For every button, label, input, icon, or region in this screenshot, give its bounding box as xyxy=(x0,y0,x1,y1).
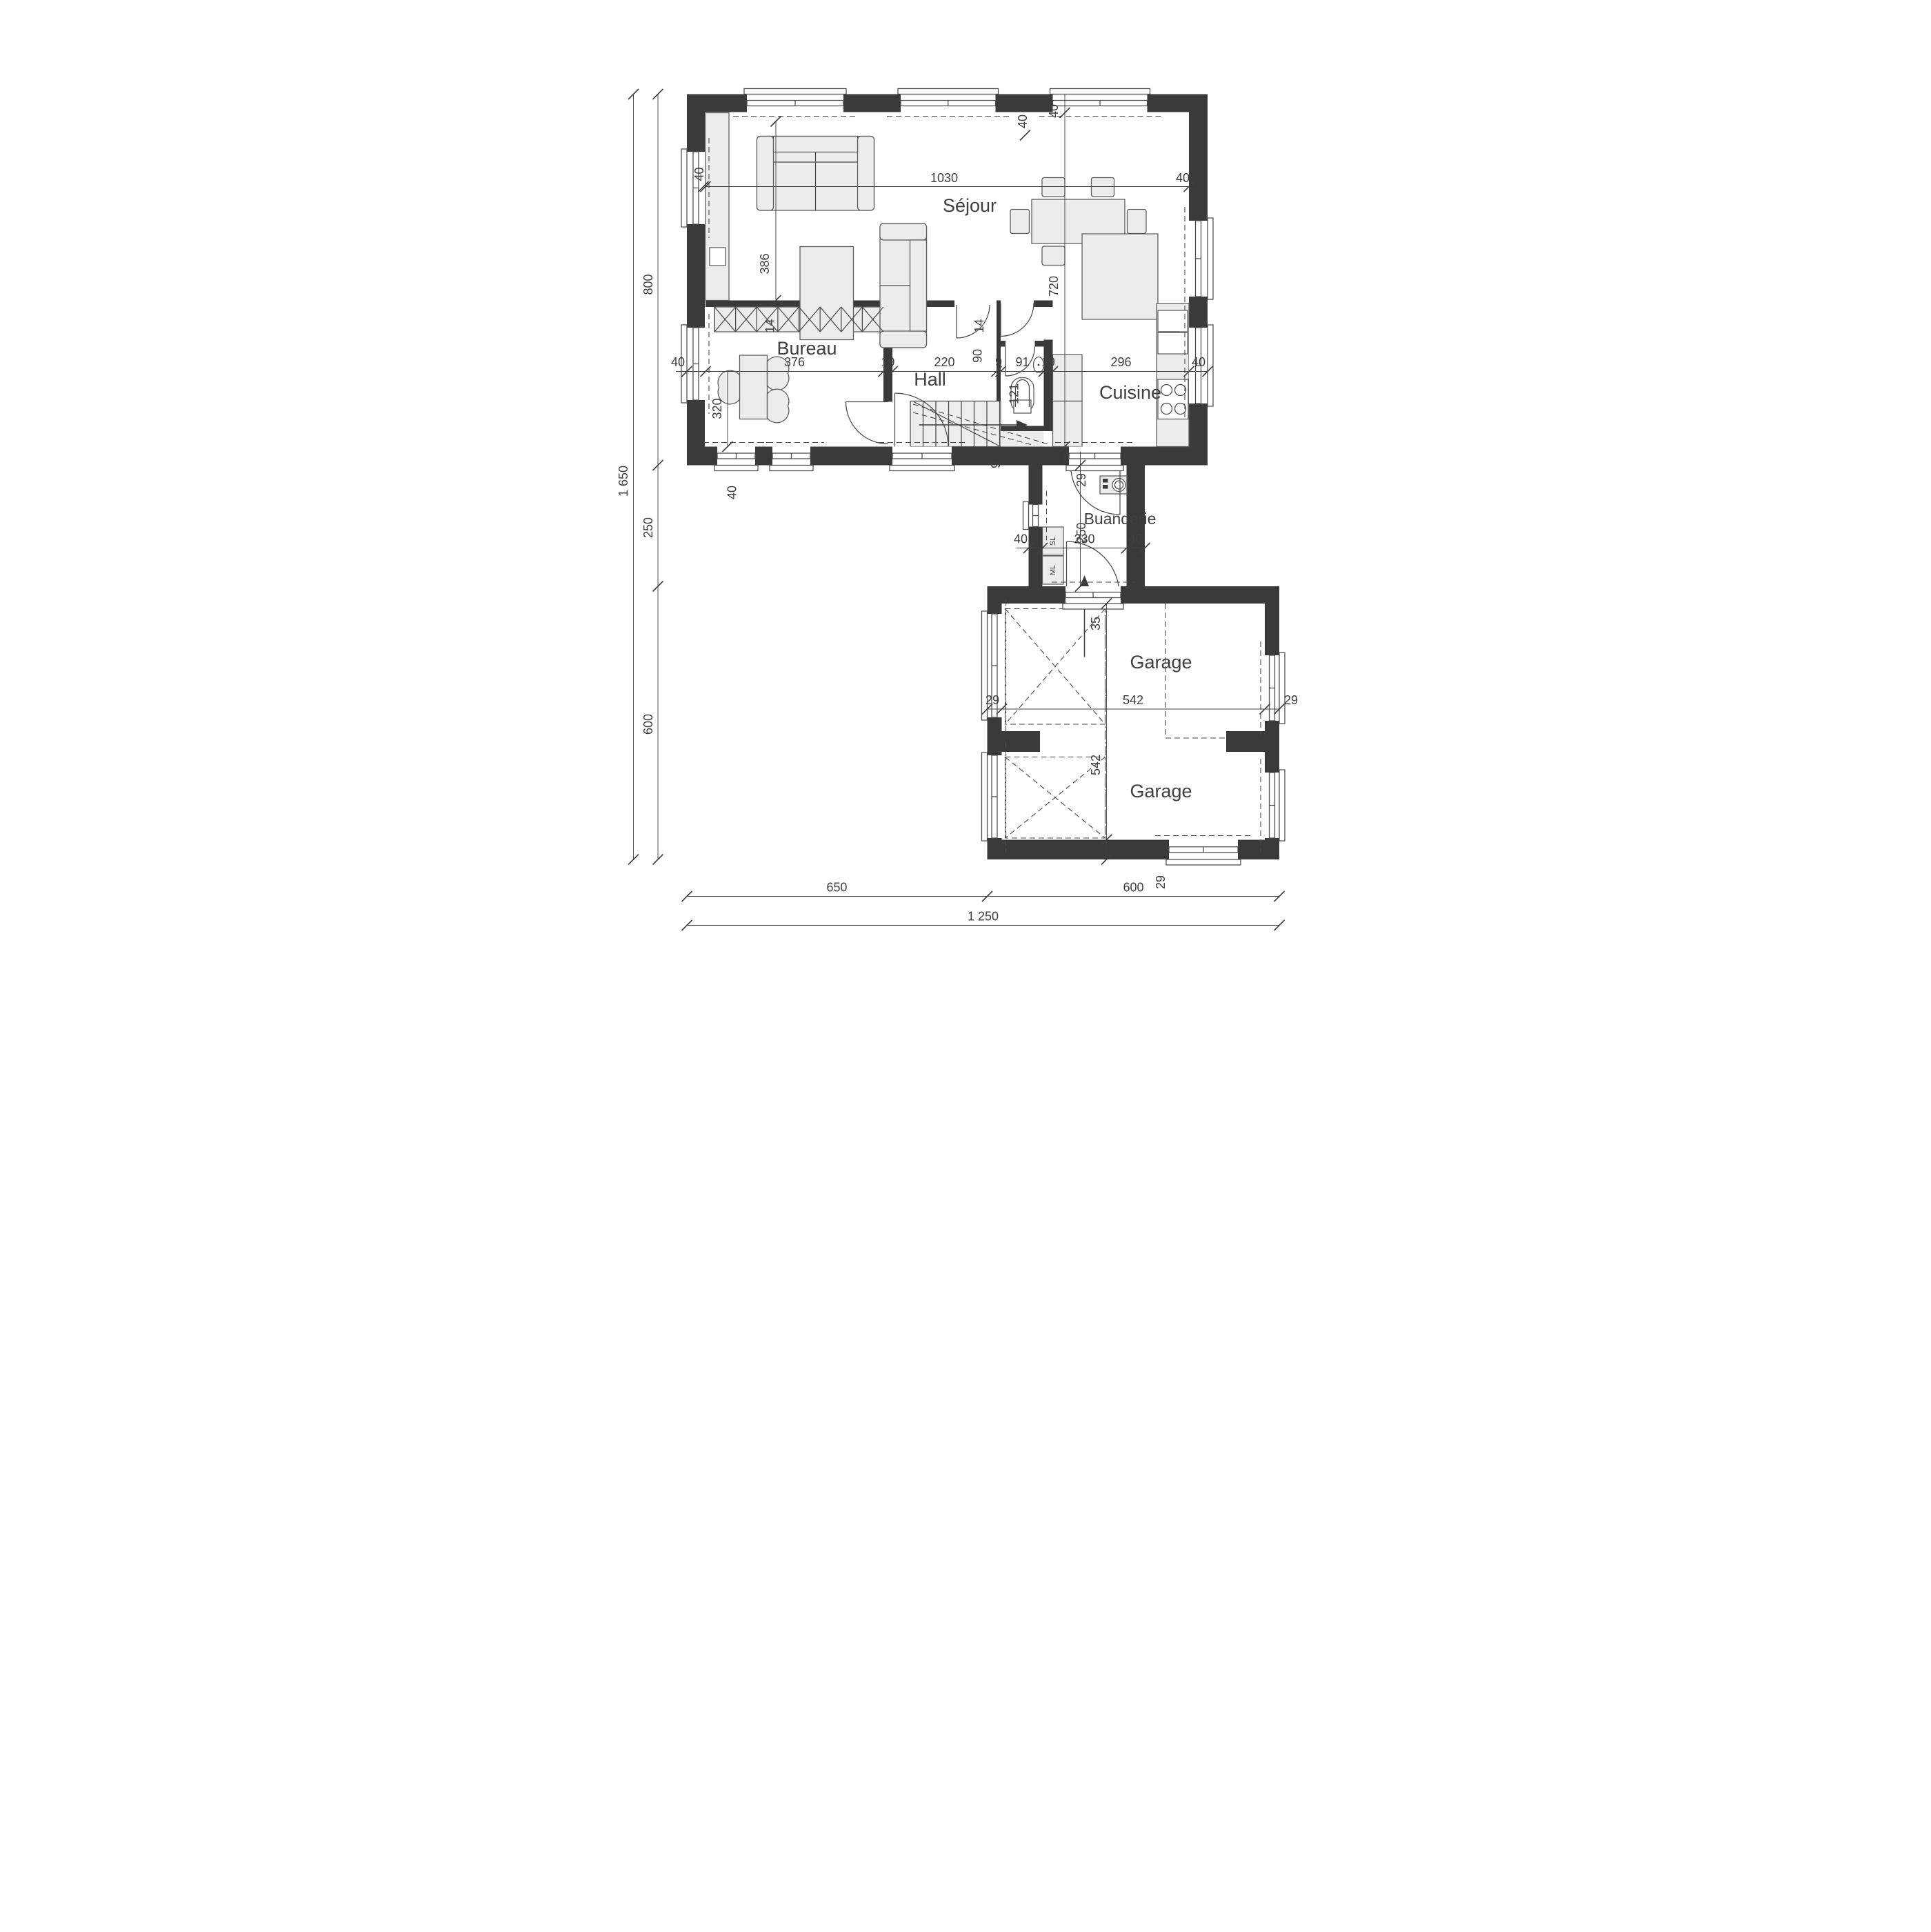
dim-mid-91: 91 xyxy=(1015,355,1029,369)
sofa-small xyxy=(880,223,927,348)
dim-mid-19-a: 19 xyxy=(881,355,894,369)
dim-wc-90: 90 xyxy=(971,349,985,363)
dim-gar-29-r: 29 xyxy=(1284,693,1298,707)
room-label-hall: Hall xyxy=(914,369,946,390)
coffee-table xyxy=(800,247,854,340)
label-dryer: SL xyxy=(1049,537,1057,546)
dim-bua-230: 230 xyxy=(1074,532,1094,546)
room-label-sejour: Séjour xyxy=(943,195,997,216)
dim-gar-542-v: 542 xyxy=(1089,755,1103,775)
dim-mid-296: 296 xyxy=(1110,355,1131,369)
floor-plan-drawing: Séjour Bureau Hall Cuisine Buanderie Gar… xyxy=(483,0,1448,966)
dim-gar-29-l: 29 xyxy=(985,693,999,707)
window xyxy=(887,89,1010,117)
dim-bua-29: 29 xyxy=(1074,473,1088,487)
dim-sejour-14-l: 14 xyxy=(763,319,777,332)
dim-bua-40-r: 40 xyxy=(1128,532,1142,546)
dim-gar-542-h: 542 xyxy=(1123,693,1143,707)
dim-mid-9: 9 xyxy=(995,355,1002,369)
boiler xyxy=(1100,476,1127,494)
window xyxy=(1185,207,1213,310)
dim-top-1030: 1030 xyxy=(930,171,958,185)
sink-unit xyxy=(1158,310,1188,332)
window xyxy=(733,89,857,117)
dim-wc-121: 121 xyxy=(1008,384,1021,404)
flue-box xyxy=(710,248,726,266)
dim-gar-29-btm: 29 xyxy=(1154,875,1168,889)
label-washer: ML xyxy=(1049,565,1057,575)
window xyxy=(681,314,709,414)
dim-wc-9: 9 xyxy=(989,461,1003,468)
dim-top-40-left: 40 xyxy=(692,167,706,181)
dim-left-1650: 1 650 xyxy=(617,466,630,497)
dim-top-40-right: 40 xyxy=(1176,171,1190,185)
room-label-garage-bottom: Garage xyxy=(1130,781,1192,801)
dim-btm-650: 650 xyxy=(826,881,847,895)
dim-top-40-wall: 40 xyxy=(1016,114,1030,128)
dim-mid-220: 220 xyxy=(934,355,954,369)
dim-left-800: 800 xyxy=(641,274,655,295)
floor-plan-page: Séjour Bureau Hall Cuisine Buanderie Gar… xyxy=(483,0,1448,966)
dim-bua-35: 35 xyxy=(1089,617,1103,630)
dim-sejour-386: 386 xyxy=(758,253,772,274)
dim-bureau-320: 320 xyxy=(710,398,724,419)
dim-left-600: 600 xyxy=(641,714,655,735)
dim-sejour-14-r: 14 xyxy=(972,319,986,332)
kitchen-tall-cabinet xyxy=(1053,355,1083,447)
dim-right-720: 720 xyxy=(1047,276,1061,297)
dim-right-40-top: 40 xyxy=(1047,104,1061,118)
kitchen-island xyxy=(1082,234,1158,319)
sofa-large xyxy=(757,137,874,211)
room-label-garage-top: Garage xyxy=(1130,652,1192,673)
dim-mid-376: 376 xyxy=(784,355,805,369)
stove xyxy=(1158,379,1188,419)
room-label-cuisine: Cuisine xyxy=(1099,382,1161,403)
dim-mid-40-l: 40 xyxy=(671,355,685,369)
dim-bureau-40-btm: 40 xyxy=(726,486,739,499)
dim-bua-40-l: 40 xyxy=(1014,532,1028,546)
dim-left-250: 250 xyxy=(641,517,655,538)
dim-btm-1250: 1 250 xyxy=(968,910,999,924)
dim-mid-19-b: 19 xyxy=(1041,355,1055,369)
dim-mid-40-r: 40 xyxy=(1192,355,1205,369)
room-label-buanderie: Buanderie xyxy=(1084,510,1157,528)
window xyxy=(1155,836,1252,866)
dim-btm-600: 600 xyxy=(1123,881,1143,895)
